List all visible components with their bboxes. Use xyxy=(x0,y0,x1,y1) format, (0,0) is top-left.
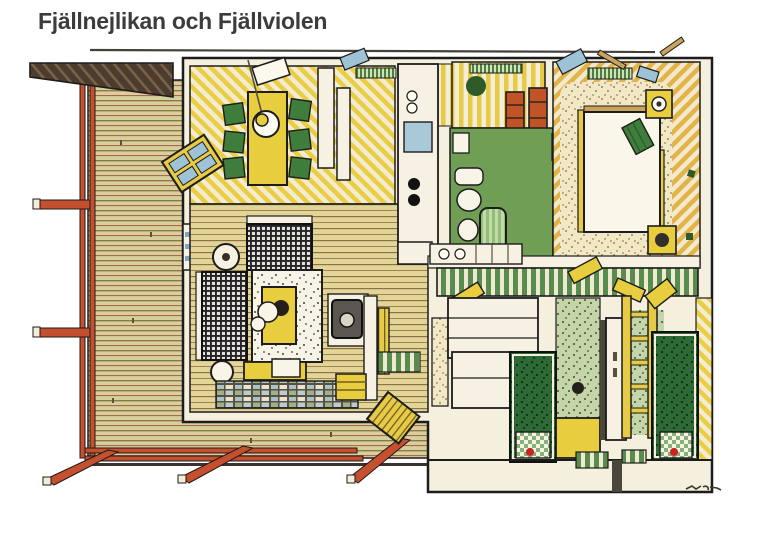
appliance xyxy=(506,92,524,132)
red-ball xyxy=(526,448,534,456)
plant xyxy=(466,76,486,96)
sofa xyxy=(202,272,247,360)
washbasin xyxy=(455,168,483,185)
nightstand xyxy=(648,226,676,254)
dining-table xyxy=(248,92,287,185)
fireplace xyxy=(251,270,322,362)
railing-post xyxy=(33,199,90,209)
wall-pillar xyxy=(337,88,350,180)
roof-edge-line xyxy=(90,50,655,52)
kitchen-counter xyxy=(398,64,438,264)
page: Fjällnejlikan och Fjällviolen xyxy=(0,0,768,546)
door-mat xyxy=(378,352,420,372)
wall-pillar xyxy=(318,68,334,168)
tv xyxy=(332,300,362,338)
shoe-bench xyxy=(430,244,522,264)
stove-burner xyxy=(408,178,420,190)
nightstand xyxy=(646,90,672,118)
master-bedroom xyxy=(553,62,700,268)
dishwasher xyxy=(404,122,432,152)
door-mat xyxy=(622,450,646,463)
red-ball xyxy=(670,448,678,456)
plant xyxy=(686,233,693,240)
coffee-table xyxy=(244,359,306,380)
window-stick xyxy=(660,37,684,56)
door-mat xyxy=(576,452,608,468)
floor-plan-illustration xyxy=(0,0,768,546)
sofa xyxy=(247,224,312,270)
living-room xyxy=(190,204,428,443)
stove-burner xyxy=(408,194,420,206)
bench xyxy=(336,374,366,400)
stool xyxy=(211,361,233,383)
appliance xyxy=(529,88,547,133)
sink xyxy=(407,91,417,101)
double-bed xyxy=(584,112,660,232)
toilet xyxy=(457,189,481,211)
kids-rug xyxy=(556,298,600,430)
railing-post xyxy=(33,327,90,337)
